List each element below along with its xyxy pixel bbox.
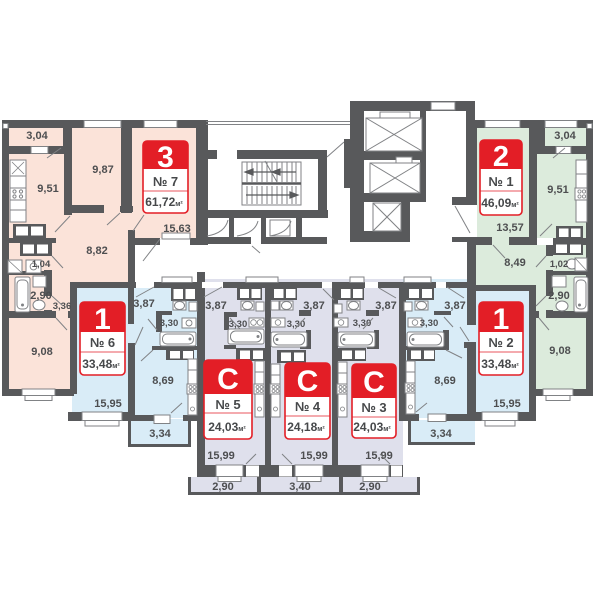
svg-text:3,30: 3,30 [160, 318, 179, 329]
svg-text:15,95: 15,95 [94, 398, 122, 410]
svg-text:1: 1 [493, 303, 510, 336]
svg-text:3,34: 3,34 [149, 428, 171, 440]
svg-text:8,82: 8,82 [86, 245, 107, 257]
svg-text:8,69: 8,69 [434, 375, 455, 387]
svg-text:9,08: 9,08 [31, 346, 52, 358]
svg-text:2,90: 2,90 [212, 481, 233, 493]
svg-text:15,99: 15,99 [365, 450, 393, 462]
svg-text:№ 1: № 1 [488, 174, 513, 189]
svg-text:№ 5: № 5 [215, 397, 240, 412]
svg-text:2,90: 2,90 [548, 290, 569, 302]
svg-text:3,30: 3,30 [420, 318, 439, 329]
svg-text:3: 3 [157, 141, 174, 174]
svg-text:2: 2 [493, 141, 509, 173]
svg-text:8,49: 8,49 [504, 257, 525, 269]
svg-text:3,40: 3,40 [289, 481, 310, 493]
svg-text:3,04: 3,04 [554, 130, 576, 142]
svg-text:15,95: 15,95 [493, 398, 521, 410]
svg-text:13,57: 13,57 [496, 222, 524, 234]
svg-text:9,08: 9,08 [549, 345, 570, 357]
svg-text:9,51: 9,51 [547, 184, 568, 196]
svg-text:2,90: 2,90 [359, 481, 380, 493]
svg-text:8,69: 8,69 [152, 375, 173, 387]
svg-text:№ 7: № 7 [153, 174, 178, 189]
svg-text:№ 4: № 4 [295, 399, 321, 414]
svg-text:C: C [363, 366, 385, 399]
svg-text:15,99: 15,99 [300, 450, 328, 462]
svg-text:3,04: 3,04 [26, 130, 48, 142]
svg-text:3,87: 3,87 [303, 300, 324, 312]
svg-text:C: C [297, 365, 319, 398]
svg-text:3,30: 3,30 [229, 319, 248, 330]
svg-text:9,87: 9,87 [92, 164, 113, 176]
svg-text:1: 1 [94, 303, 111, 336]
svg-text:3,87: 3,87 [444, 300, 465, 312]
svg-text:3,87: 3,87 [133, 298, 154, 310]
svg-text:3,36: 3,36 [53, 301, 72, 312]
svg-text:2,90: 2,90 [30, 290, 51, 302]
svg-text:1,02: 1,02 [550, 259, 569, 270]
svg-text:3,87: 3,87 [375, 300, 396, 312]
svg-text:1,04: 1,04 [32, 259, 51, 270]
svg-text:9,51: 9,51 [37, 183, 58, 195]
svg-text:№ 3: № 3 [361, 400, 386, 415]
svg-text:3,34: 3,34 [430, 428, 452, 440]
svg-text:№ 6: № 6 [90, 335, 115, 350]
svg-text:№ 2: № 2 [488, 335, 513, 350]
svg-text:3,87: 3,87 [205, 300, 226, 312]
svg-text:15,99: 15,99 [207, 450, 235, 462]
svg-text:C: C [217, 363, 239, 396]
